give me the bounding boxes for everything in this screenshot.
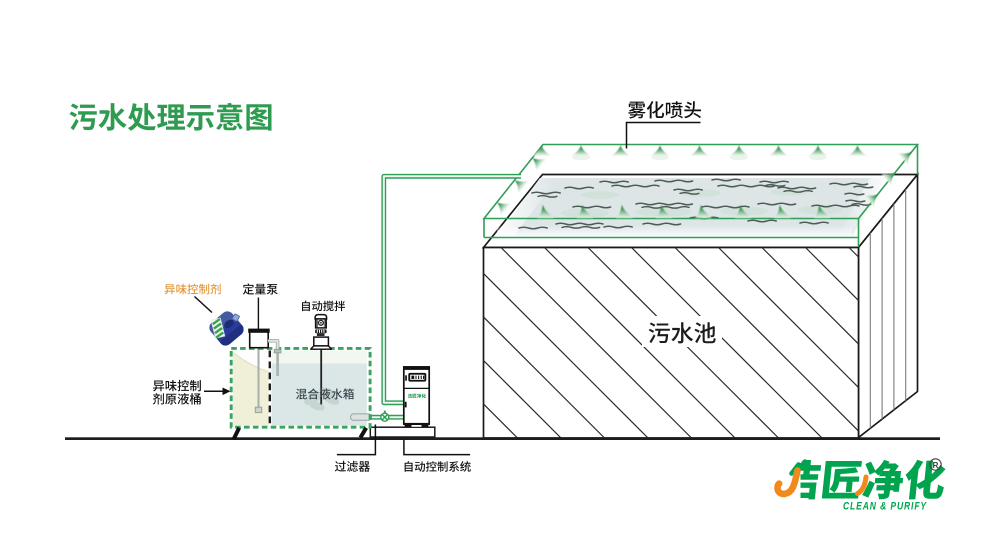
svg-text:R: R: [933, 461, 939, 470]
svg-text:CLEAN & PURIFY: CLEAN & PURIFY: [843, 501, 927, 513]
